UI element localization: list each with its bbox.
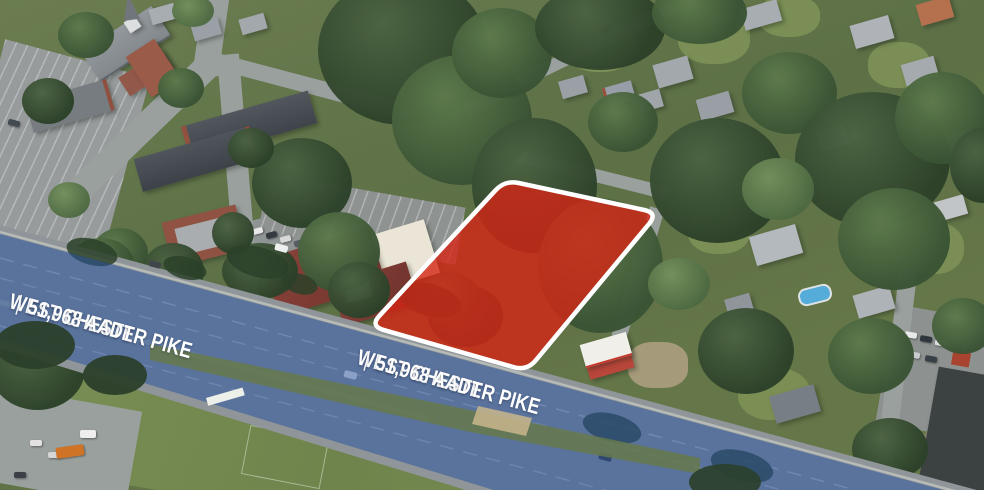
tree-canopy bbox=[22, 78, 74, 124]
road-label: WEST CHESTER PIKE|51,968 AADT bbox=[355, 344, 380, 374]
tree-canopy bbox=[212, 212, 254, 254]
tree-canopy bbox=[58, 12, 114, 58]
tree-canopy bbox=[648, 258, 710, 310]
car bbox=[14, 472, 26, 478]
tree-canopy bbox=[142, 243, 204, 299]
tree-canopy bbox=[598, 412, 674, 474]
gravel-lot bbox=[628, 342, 688, 388]
car bbox=[30, 440, 42, 446]
tree-canopy bbox=[722, 438, 808, 490]
road-label: WEST CHESTER PIKE|51,968 AADT bbox=[7, 288, 32, 318]
tree-canopy bbox=[828, 318, 914, 394]
tree-canopy bbox=[698, 308, 794, 394]
tree-canopy bbox=[68, 238, 134, 290]
tree-canopy bbox=[328, 262, 390, 318]
tree-canopy bbox=[852, 418, 928, 480]
church-spire bbox=[120, 0, 139, 21]
house-roof bbox=[696, 91, 735, 122]
aerial-map: WEST CHESTER PIKE|51,968 AADT WEST CHEST… bbox=[0, 0, 984, 490]
tree-canopy bbox=[538, 198, 663, 333]
tree-canopy bbox=[838, 188, 950, 290]
house-roof bbox=[852, 285, 895, 319]
house-roof bbox=[652, 56, 693, 89]
house-roof bbox=[238, 13, 267, 36]
swimming-pool bbox=[796, 282, 833, 308]
tree-canopy bbox=[742, 158, 814, 220]
tree-canopy bbox=[588, 92, 658, 152]
tree-canopy bbox=[48, 182, 90, 218]
tree-canopy bbox=[418, 272, 480, 324]
tree-canopy bbox=[228, 128, 274, 168]
house-roof bbox=[558, 75, 588, 99]
tree-canopy bbox=[462, 448, 544, 490]
tree-canopy bbox=[158, 68, 204, 108]
van bbox=[80, 430, 96, 438]
house-roof-terracotta bbox=[916, 0, 955, 26]
